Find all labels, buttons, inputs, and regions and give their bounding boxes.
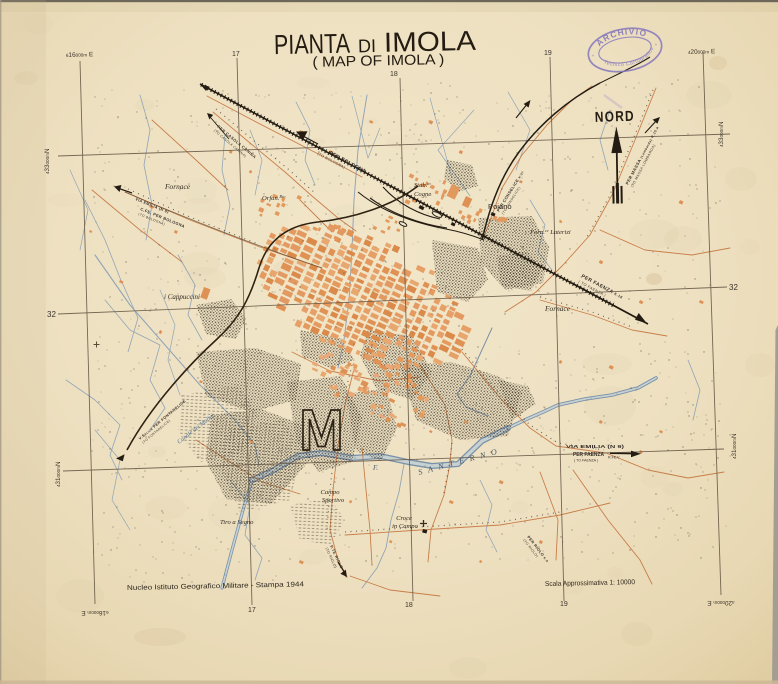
- svg-text:18: 18: [405, 602, 413, 609]
- svg-text:Tiro a Segno: Tiro a Segno: [220, 519, 254, 526]
- svg-text:R.FE.V: R.FE.V: [608, 456, 620, 460]
- svg-text:( TO FAENZA ): ( TO FAENZA ): [574, 459, 598, 463]
- svg-text:NORD: NORD: [595, 109, 636, 126]
- svg-text:Sportivo: Sportivo: [322, 497, 345, 504]
- svg-text:433000mN: 433000mN: [44, 149, 51, 174]
- svg-text:Fornace: Fornace: [164, 182, 191, 191]
- svg-text:Fornace: Fornace: [544, 304, 571, 313]
- svg-text:in Campo: in Campo: [392, 523, 419, 530]
- svg-text:420000m E: 420000m E: [707, 599, 734, 606]
- svg-text:17: 17: [248, 607, 256, 614]
- svg-text:17: 17: [232, 51, 240, 58]
- svg-text:PER FAENZA: PER FAENZA: [573, 452, 604, 458]
- svg-text:F.: F.: [372, 464, 378, 472]
- svg-text:616000m E: 616000m E: [81, 609, 108, 616]
- svg-text:Cogne: Cogne: [414, 191, 431, 198]
- svg-text:19: 19: [544, 50, 552, 57]
- svg-text:i Cappuccini: i Cappuccini: [164, 293, 200, 301]
- svg-text:( MAP OF IMOLA ): ( MAP OF IMOLA ): [312, 52, 444, 71]
- svg-text:433000mN: 433000mN: [718, 122, 725, 147]
- svg-text:18: 18: [390, 71, 398, 78]
- svg-text:32: 32: [729, 283, 738, 292]
- svg-text:Poiano: Poiano: [488, 202, 512, 211]
- svg-text:Croce: Croce: [396, 515, 412, 522]
- svg-text:431000mN: 431000mN: [731, 434, 738, 459]
- svg-text:32: 32: [47, 310, 56, 319]
- svg-text:Campo: Campo: [320, 489, 340, 496]
- svg-text:431000mN: 431000mN: [55, 462, 62, 487]
- svg-text:Forn.ce Laterizi: Forn.ce Laterizi: [529, 228, 571, 236]
- svg-text:VIA EMILIA (N 9): VIA EMILIA (N 9): [566, 444, 625, 449]
- svg-text:19: 19: [560, 601, 568, 608]
